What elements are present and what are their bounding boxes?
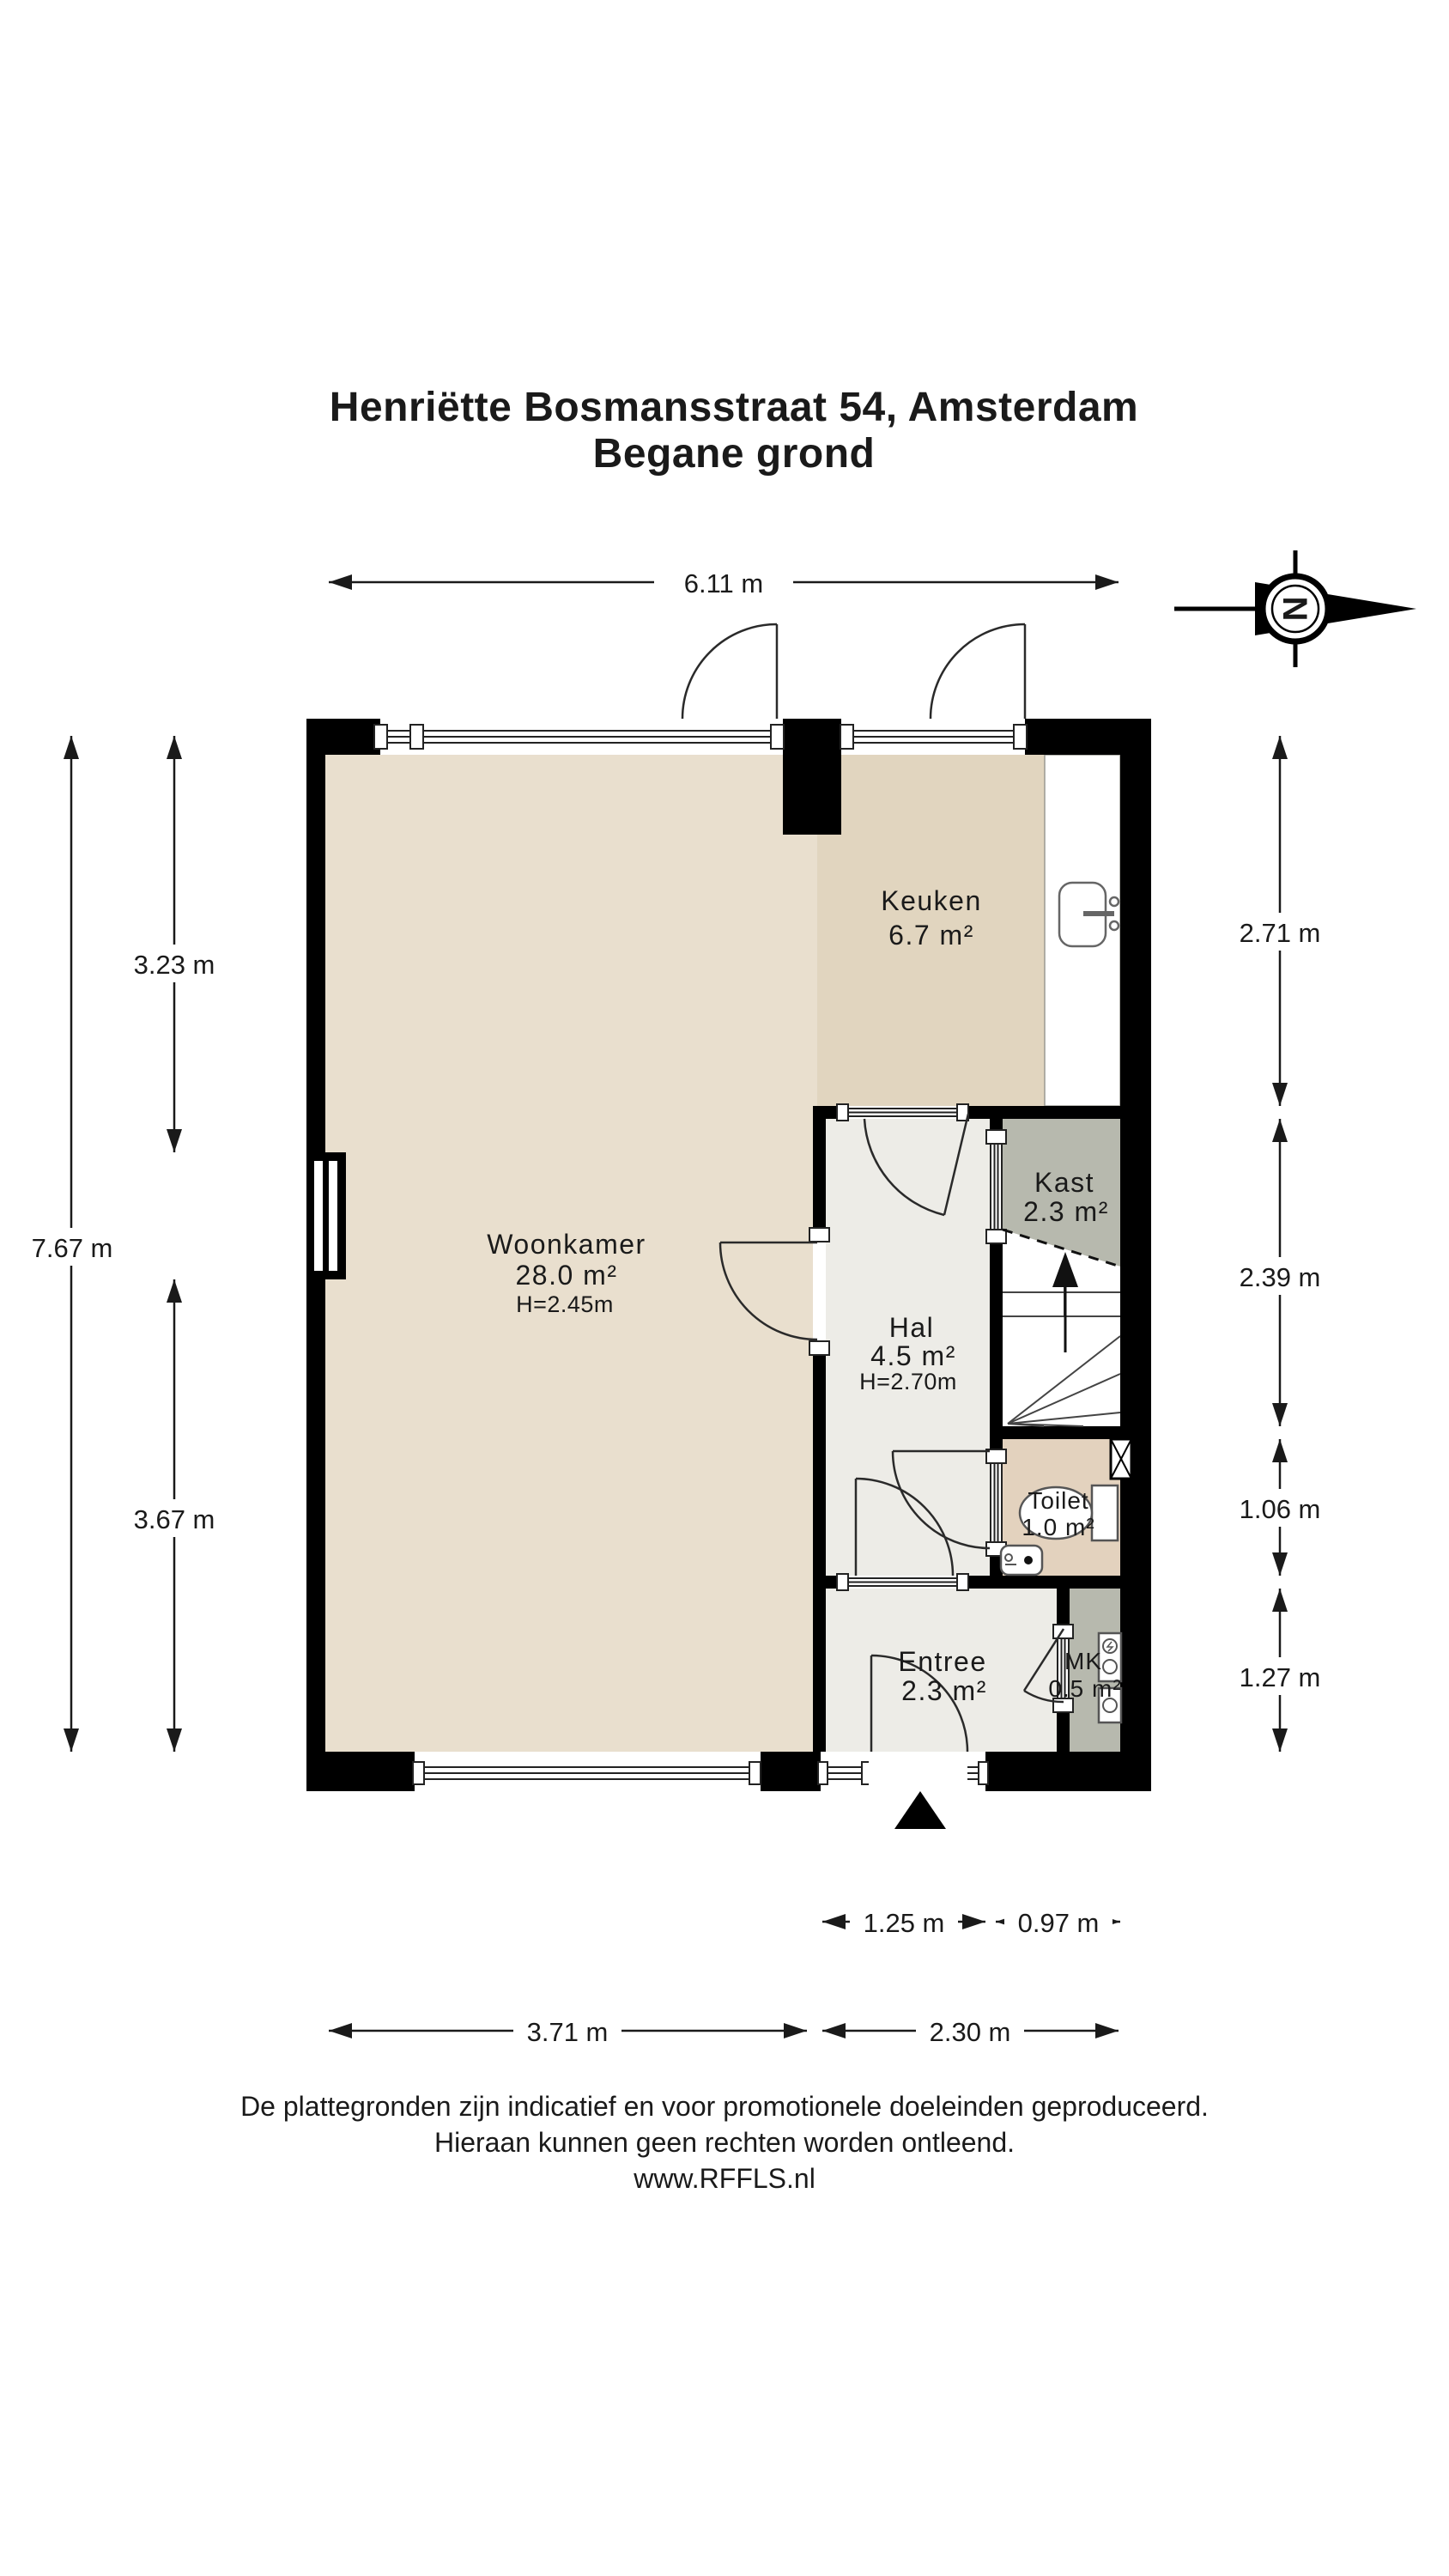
dim-right-keuken: 2.71 m	[1227, 736, 1333, 1106]
dim-top-width: 6.11 m	[329, 563, 1119, 599]
compass-icon: N	[1174, 550, 1416, 667]
dim-right-keuken-label: 2.71 m	[1240, 918, 1321, 948]
hal-area: 4.5 m²	[870, 1340, 956, 1371]
mk-area: 0.5 m²	[1048, 1675, 1121, 1702]
dim-bottom-woonkamer-label: 3.71 m	[527, 2017, 609, 2047]
dim-left-total-label: 7.67 m	[32, 1233, 113, 1263]
toilet-area: 1.0 m²	[1022, 1514, 1094, 1540]
wall-top-right	[1025, 719, 1120, 755]
dim-right-toilet: 1.06 m	[1227, 1439, 1333, 1576]
footer-line-2: Hieraan kunnen geen rechten worden ontle…	[434, 2127, 1015, 2158]
page-title: Henriëtte Bosmansstraat 54, Amsterdam Be…	[330, 385, 1138, 477]
wall-right	[1120, 719, 1151, 1791]
footer-website: www.RFFLS.nl	[633, 2163, 815, 2194]
hal-ceiling: H=2.70m	[859, 1369, 957, 1394]
hal-name: Hal	[889, 1312, 935, 1343]
wall-stairs-toilet	[990, 1426, 1151, 1439]
window-entree-sidelight-right	[967, 1752, 988, 1791]
dim-top-width-label: 6.11 m	[684, 568, 763, 598]
compass-letter: N	[1276, 597, 1313, 622]
dim-left-upper: 3.23 m	[121, 736, 227, 1152]
toilet-window-icon	[1111, 1439, 1131, 1479]
window-bottom-woonkamer	[413, 1752, 761, 1791]
dim-right-stairs: 2.39 m	[1227, 1119, 1333, 1426]
kast-area: 2.3 m²	[1023, 1196, 1109, 1227]
kitchen-counter	[1045, 755, 1120, 1106]
woonkamer-area: 28.0 m²	[516, 1260, 618, 1291]
mk-name: MK	[1064, 1648, 1102, 1674]
wall-woonkamer-hal	[813, 1106, 826, 1752]
dim-right-stairs-label: 2.39 m	[1240, 1262, 1321, 1292]
dim-left-upper-label: 3.23 m	[134, 950, 215, 980]
label-toilet: Toilet 1.0 m²	[1022, 1487, 1094, 1540]
dim-bottom-right: 2.30 m	[822, 2013, 1119, 2049]
dim-right-entree: 1.27 m	[1227, 1589, 1333, 1752]
window-top-keuken	[840, 719, 1027, 755]
footer-disclaimer: De plattegronden zijn indicatief en voor…	[240, 2091, 1209, 2194]
wall-top-pier	[783, 719, 841, 835]
dim-bottom-entree: 1.25 m	[822, 1904, 985, 1940]
dim-bottom-right-label: 2.30 m	[930, 2017, 1011, 2047]
entree-name: Entree	[898, 1646, 986, 1677]
window-top-woonkamer	[374, 719, 784, 755]
dim-bottom-woonkamer: 3.71 m	[329, 2013, 807, 2049]
dim-bottom-mk-label: 0.97 m	[1018, 1908, 1100, 1938]
dim-left-total: 7.67 m	[19, 736, 124, 1752]
label-entree: Entree 2.3 m²	[898, 1646, 986, 1706]
window-hal-entree	[837, 1574, 968, 1590]
exterior-door-woonkamer	[682, 624, 777, 719]
floorplan-page: Henriëtte Bosmansstraat 54, Amsterdam Be…	[0, 0, 1449, 2576]
front-door-opening	[869, 1752, 967, 1791]
dim-left-lower-label: 3.67 m	[134, 1504, 215, 1534]
title-floor: Begane grond	[593, 431, 876, 477]
entree-area: 2.3 m²	[901, 1675, 987, 1706]
toilet-name: Toilet	[1028, 1487, 1088, 1514]
woonkamer-ceiling: H=2.45m	[516, 1291, 614, 1317]
woonkamer-name: Woonkamer	[487, 1229, 646, 1260]
wall-top-corner-left	[306, 719, 380, 755]
dim-bottom-mk: 0.97 m	[996, 1904, 1120, 1940]
dim-right-entree-label: 1.27 m	[1240, 1662, 1321, 1692]
keuken-name: Keuken	[881, 885, 982, 916]
dim-left-lower: 3.67 m	[121, 1279, 227, 1752]
window-entree-sidelight-left	[818, 1752, 871, 1791]
keuken-area: 6.7 m²	[888, 920, 974, 951]
left-wall-recess	[306, 1152, 346, 1279]
basin-icon	[1001, 1546, 1042, 1575]
kast-name: Kast	[1034, 1167, 1094, 1198]
window-keuken-hal	[837, 1104, 968, 1121]
dim-bottom-entree-label: 1.25 m	[864, 1908, 945, 1938]
exterior-door-keuken	[931, 624, 1025, 719]
title-address: Henriëtte Bosmansstraat 54, Amsterdam	[330, 385, 1138, 430]
footer-line-1: De plattegronden zijn indicatief en voor…	[240, 2091, 1209, 2122]
dim-right-toilet-label: 1.06 m	[1240, 1494, 1321, 1524]
entrance-arrow-icon	[894, 1791, 946, 1829]
